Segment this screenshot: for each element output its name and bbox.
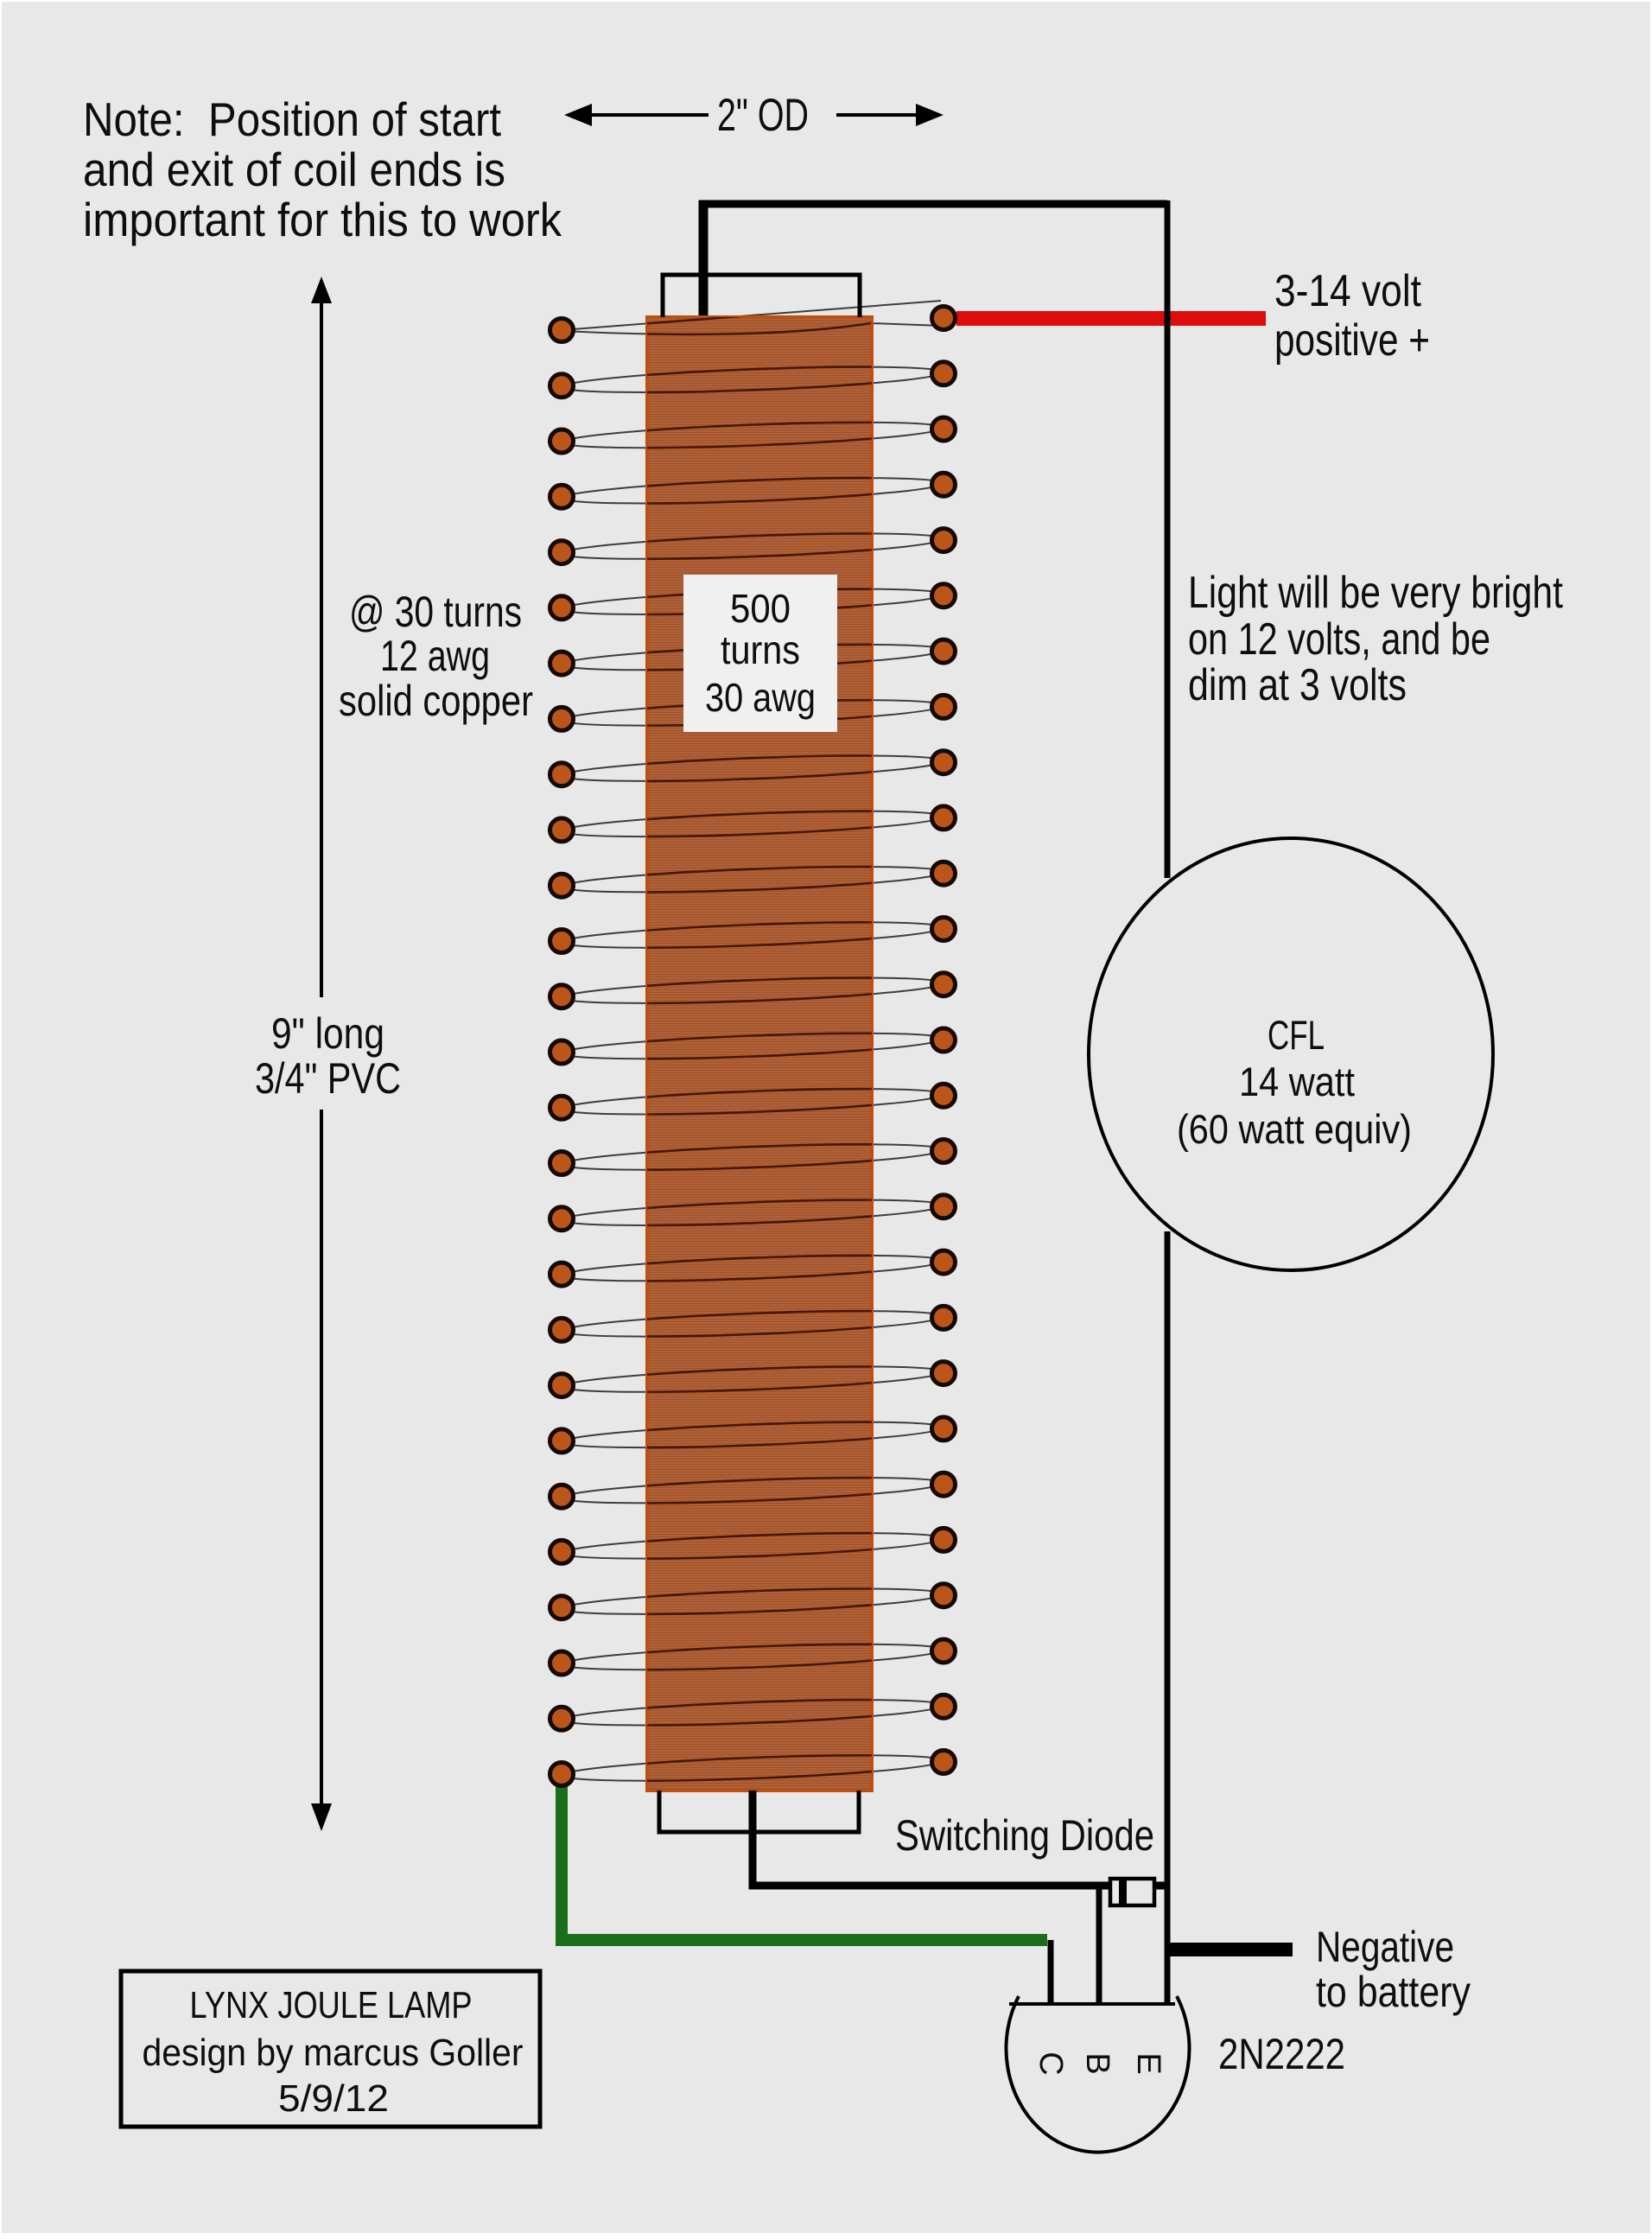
svg-text:on 12 volts, and be: on 12 volts, and be bbox=[1188, 614, 1490, 665]
svg-text:@ 30 turns: @ 30 turns bbox=[349, 588, 522, 636]
svg-text:to battery: to battery bbox=[1316, 1968, 1471, 2016]
svg-text:14 watt: 14 watt bbox=[1239, 1059, 1355, 1104]
svg-text:Note: Position of start: Note: Position of start bbox=[83, 92, 501, 146]
svg-text:Light will be very bright: Light will be very bright bbox=[1188, 568, 1563, 618]
svg-text:2N2222: 2N2222 bbox=[1218, 2030, 1345, 2078]
svg-text:LYNX JOULE LAMP: LYNX JOULE LAMP bbox=[190, 1984, 473, 2026]
svg-text:12 awg: 12 awg bbox=[380, 632, 490, 680]
svg-text:E: E bbox=[1130, 2052, 1166, 2074]
svg-text:design by marcus Goller: design by marcus Goller bbox=[143, 2032, 524, 2074]
svg-text:CFL: CFL bbox=[1268, 1012, 1325, 1058]
svg-text:dim at 3 volts: dim at 3 volts bbox=[1188, 660, 1407, 710]
svg-text:9" long: 9" long bbox=[271, 1009, 384, 1058]
svg-text:3-14 volt: 3-14 volt bbox=[1274, 266, 1421, 316]
svg-text:Negative: Negative bbox=[1316, 1923, 1454, 1971]
svg-text:positive +: positive + bbox=[1274, 315, 1430, 366]
svg-text:500: 500 bbox=[730, 586, 791, 631]
svg-text:and exit of coil ends is: and exit of coil ends is bbox=[83, 143, 505, 196]
svg-text:solid copper: solid copper bbox=[339, 677, 533, 725]
svg-text:turns: turns bbox=[721, 627, 800, 672]
svg-text:5/9/12: 5/9/12 bbox=[278, 2077, 389, 2120]
svg-text:2" OD: 2" OD bbox=[717, 90, 809, 141]
svg-text:Switching Diode: Switching Diode bbox=[895, 1811, 1154, 1860]
svg-text:B: B bbox=[1079, 2052, 1115, 2074]
svg-text:30 awg: 30 awg bbox=[705, 675, 816, 720]
svg-text:important for this to work: important for this to work bbox=[83, 193, 562, 246]
svg-text:C: C bbox=[1032, 2051, 1069, 2075]
svg-text:(60 watt equiv): (60 watt equiv) bbox=[1177, 1106, 1412, 1152]
svg-text:3/4" PVC: 3/4" PVC bbox=[255, 1054, 401, 1103]
